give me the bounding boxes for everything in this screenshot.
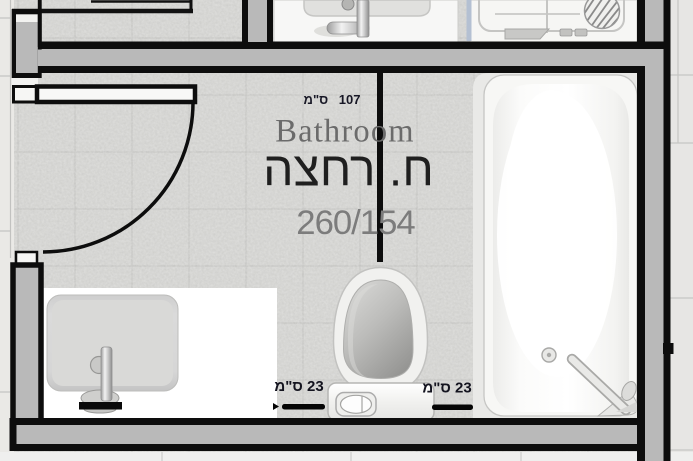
svg-text:ח. רחצה: ח. רחצה [263,144,434,197]
svg-text:32 ס"מ: 32 ס"מ [422,380,471,397]
svg-text:701 ס"מ: 701 ס"מ [304,92,361,107]
svg-text:260/154: 260/154 [296,204,415,242]
svg-text:32 ס"מ: 32 ס"מ [274,378,323,395]
